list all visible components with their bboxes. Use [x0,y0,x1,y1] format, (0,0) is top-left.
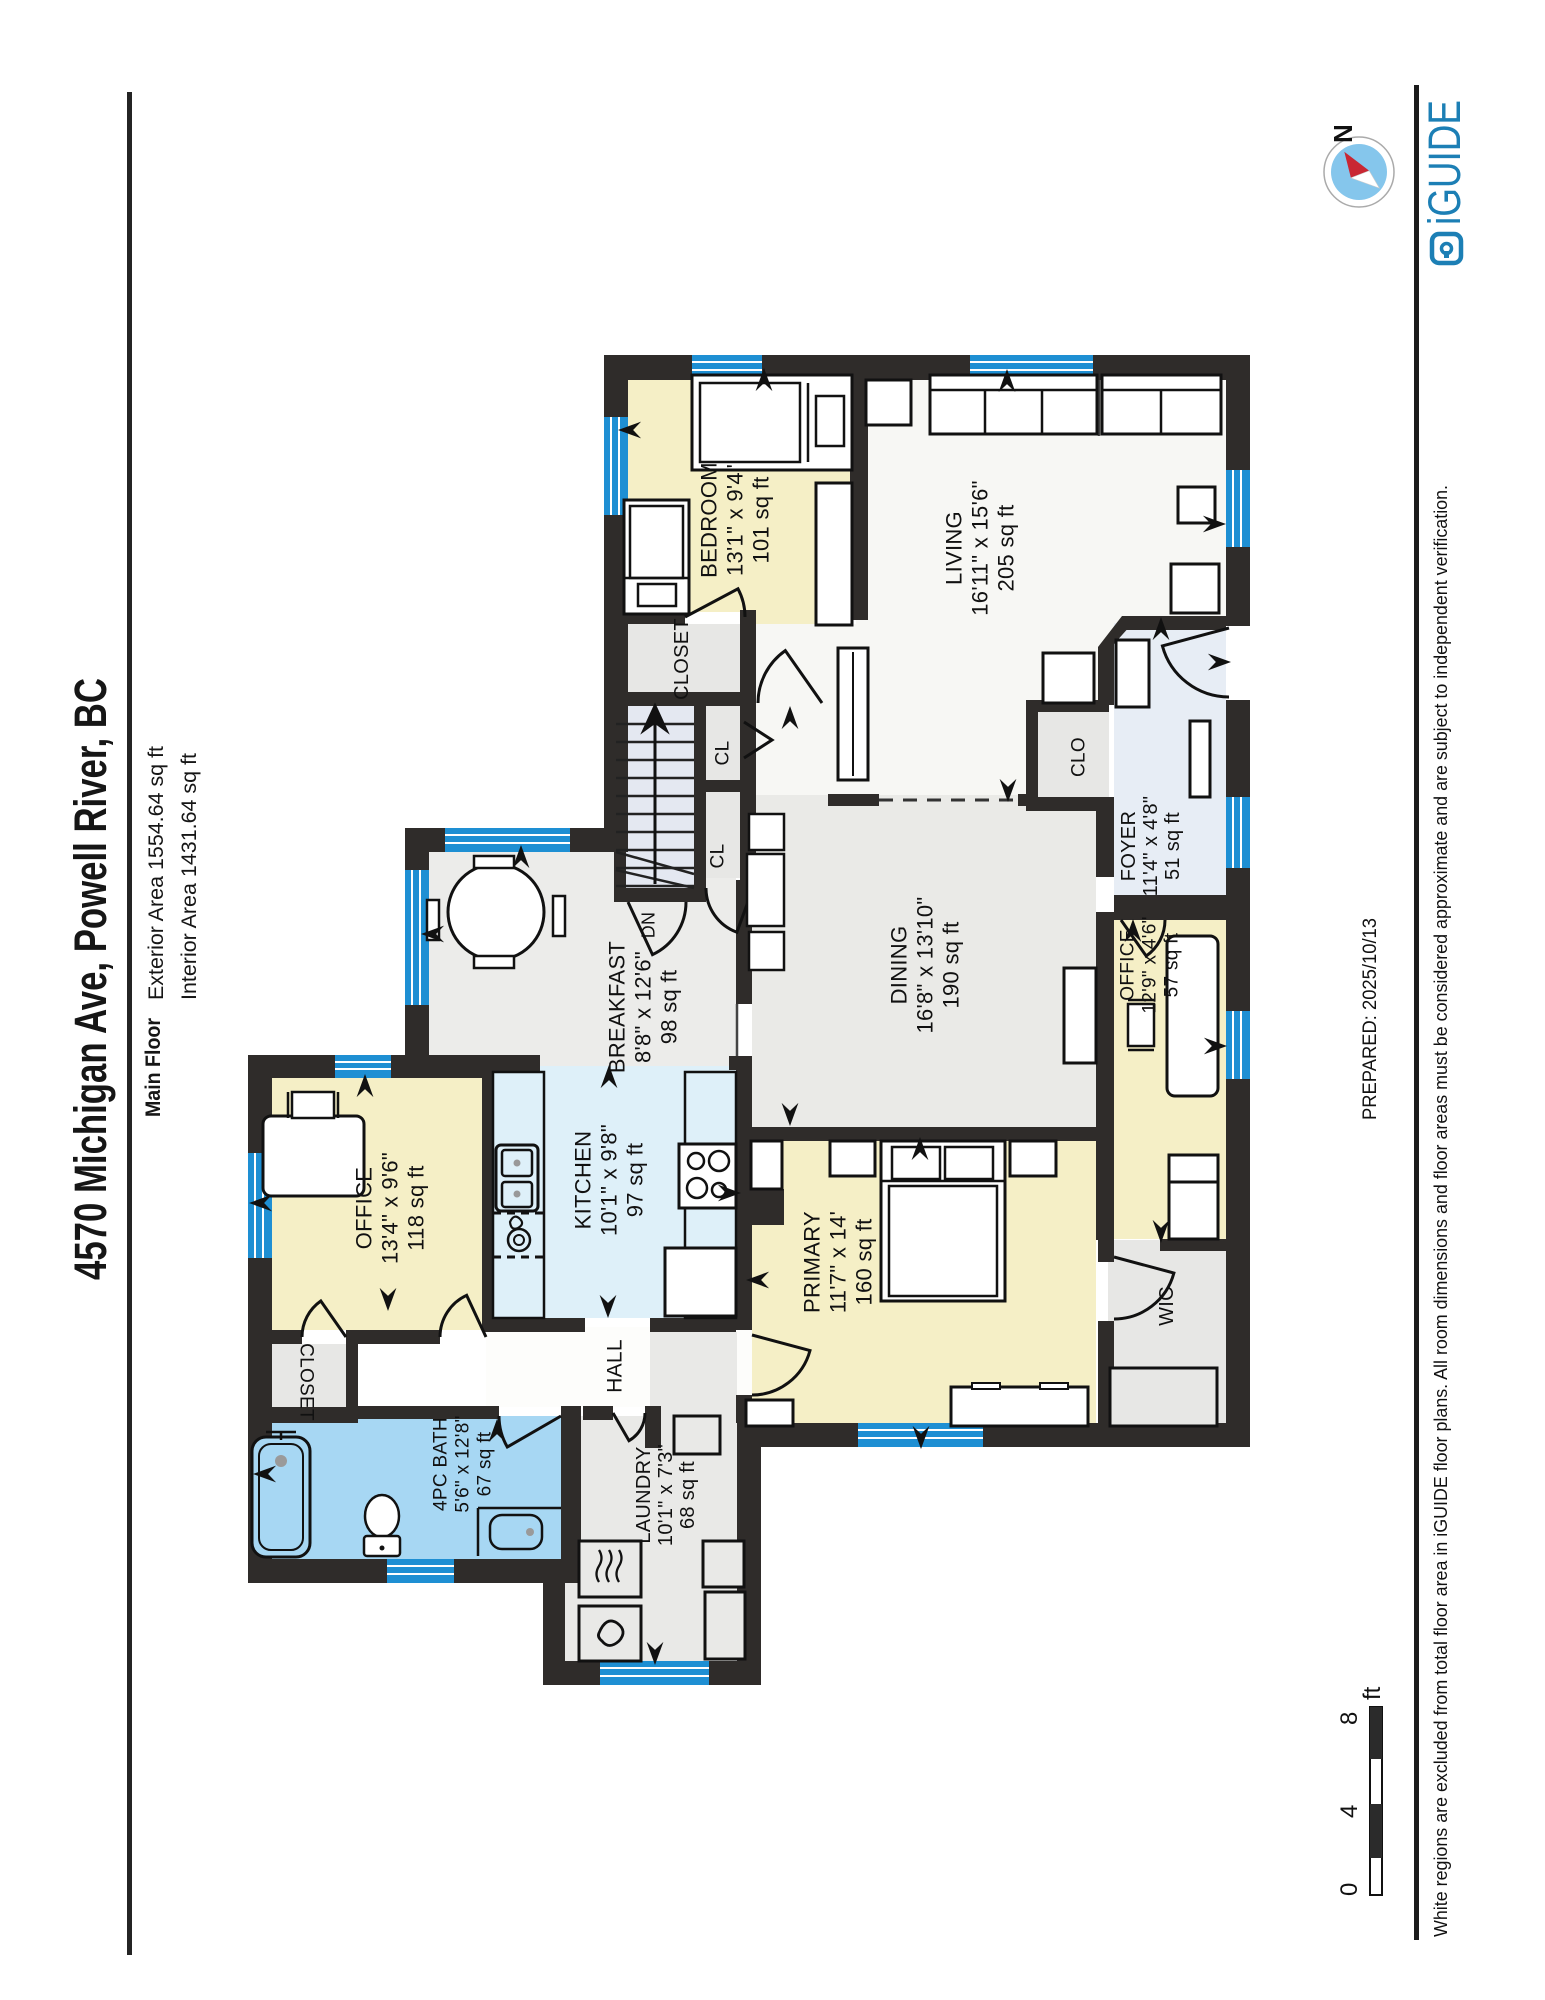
svg-text:OFFICE13'4" x 9'6"118 sq ft: OFFICE13'4" x 9'6"118 sq ft [352,1152,429,1264]
svg-text:CL: CL [708,844,729,869]
svg-text:CLO: CLO [1069,737,1090,777]
svg-text:4: 4 [1336,1805,1363,1818]
svg-text:Interior Area 1431.64 sq ft: Interior Area 1431.64 sq ft [178,753,201,1000]
svg-text:0: 0 [1336,1883,1363,1896]
svg-text:WIC: WIC [1156,1286,1178,1326]
svg-text:Exterior Area 1554.64 sq ft: Exterior Area 1554.64 sq ft [145,746,168,1000]
svg-text:iGUIDE: iGUIDE [1419,100,1470,225]
svg-text:PRIMARY11'7" x 14'160 sq ft: PRIMARY11'7" x 14'160 sq ft [800,1211,877,1313]
svg-text:PREPARED: 2025/10/13: PREPARED: 2025/10/13 [1359,918,1381,1120]
svg-text:4570 Michigan Ave, Powell Rive: 4570 Michigan Ave, Powell River, BC [65,678,116,1280]
svg-text:White regions are excluded fro: White regions are excluded from total fl… [1430,485,1451,1937]
svg-text:ft: ft [1359,1686,1386,1700]
svg-text:8: 8 [1336,1712,1363,1725]
svg-text:BEDROOM13'1" x 9'4"101 sq ft: BEDROOM13'1" x 9'4"101 sq ft [697,462,774,578]
svg-text:Main Floor: Main Floor [142,1018,165,1117]
svg-text:HALL: HALL [603,1339,626,1393]
svg-text:N: N [1328,124,1358,143]
svg-text:CLOSET: CLOSET [671,618,693,700]
svg-text:CLOSET: CLOSET [295,1343,316,1421]
svg-text:DN: DN [638,912,658,939]
svg-text:CL: CL [713,741,734,766]
